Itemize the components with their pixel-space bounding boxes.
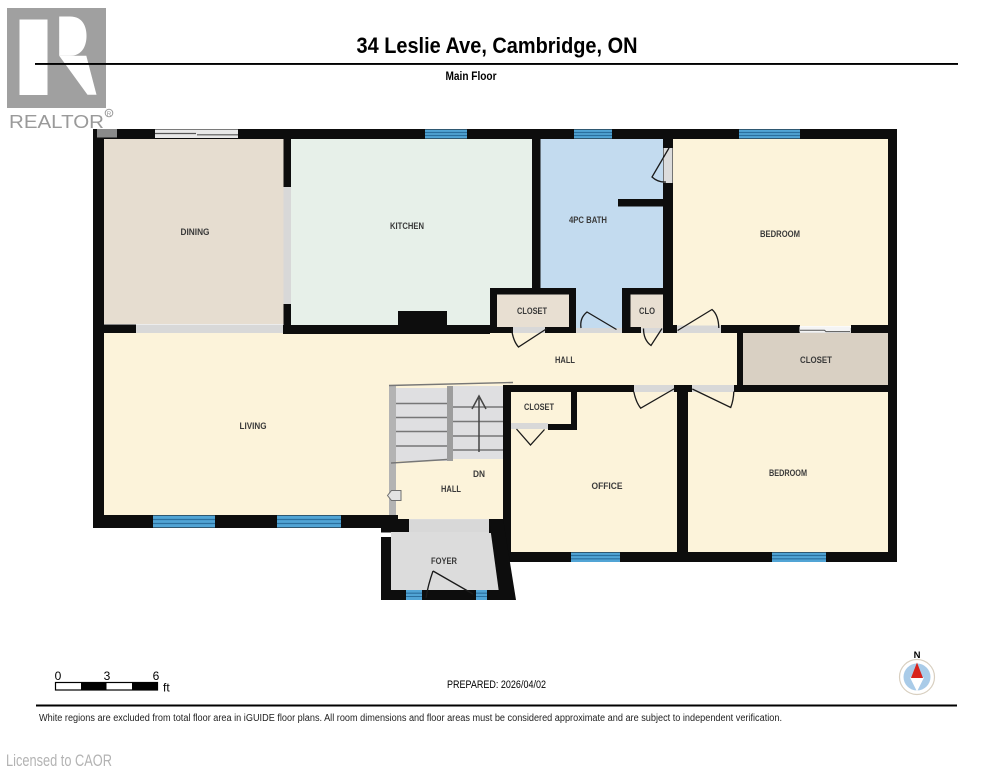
svg-text:CLOSET: CLOSET xyxy=(524,402,554,412)
svg-text:34 Leslie Ave, Cambridge, ON: 34 Leslie Ave, Cambridge, ON xyxy=(357,33,638,58)
svg-text:OFFICE: OFFICE xyxy=(592,481,623,491)
svg-text:DN: DN xyxy=(473,469,485,479)
svg-text:Main Floor: Main Floor xyxy=(446,69,497,83)
svg-text:KITCHEN: KITCHEN xyxy=(390,221,424,231)
svg-text:0: 0 xyxy=(55,669,62,683)
svg-text:6: 6 xyxy=(153,669,160,683)
svg-text:BEDROOM: BEDROOM xyxy=(760,229,800,239)
svg-text:HALL: HALL xyxy=(555,355,575,365)
svg-text:CLOSET: CLOSET xyxy=(800,355,832,365)
svg-text:CLOSET: CLOSET xyxy=(517,306,547,316)
svg-text:4PC BATH: 4PC BATH xyxy=(569,215,607,225)
svg-text:LIVING: LIVING xyxy=(240,421,267,431)
svg-text:3: 3 xyxy=(104,669,111,683)
svg-text:White regions are excluded fro: White regions are excluded from total fl… xyxy=(39,713,782,724)
svg-text:Licensed to CAOR: Licensed to CAOR xyxy=(6,751,112,768)
svg-text:HALL: HALL xyxy=(441,484,461,494)
svg-text:REALTOR: REALTOR xyxy=(9,112,104,132)
svg-text:FOYER: FOYER xyxy=(431,556,457,566)
svg-text:ft: ft xyxy=(163,681,170,695)
svg-text:DINING: DINING xyxy=(181,227,210,237)
svg-text:N: N xyxy=(914,650,921,661)
svg-text:CLO: CLO xyxy=(639,306,655,316)
svg-text:PREPARED: 2026/04/02: PREPARED: 2026/04/02 xyxy=(447,679,546,691)
svg-text:R: R xyxy=(107,111,112,118)
svg-text:BEDROOM: BEDROOM xyxy=(769,468,807,478)
